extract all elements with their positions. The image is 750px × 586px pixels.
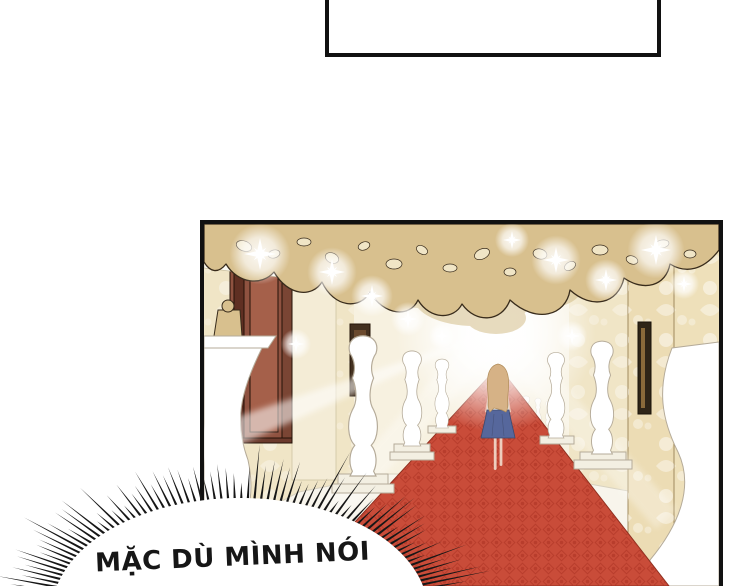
comic-page: MẶC DÙ MÌNH NÓI: [0, 0, 750, 586]
wall-sconce: [638, 322, 651, 414]
burst-speech-bubble: MẶC DÙ MÌNH NÓI: [15, 440, 465, 586]
top-speech-box: [325, 0, 661, 57]
